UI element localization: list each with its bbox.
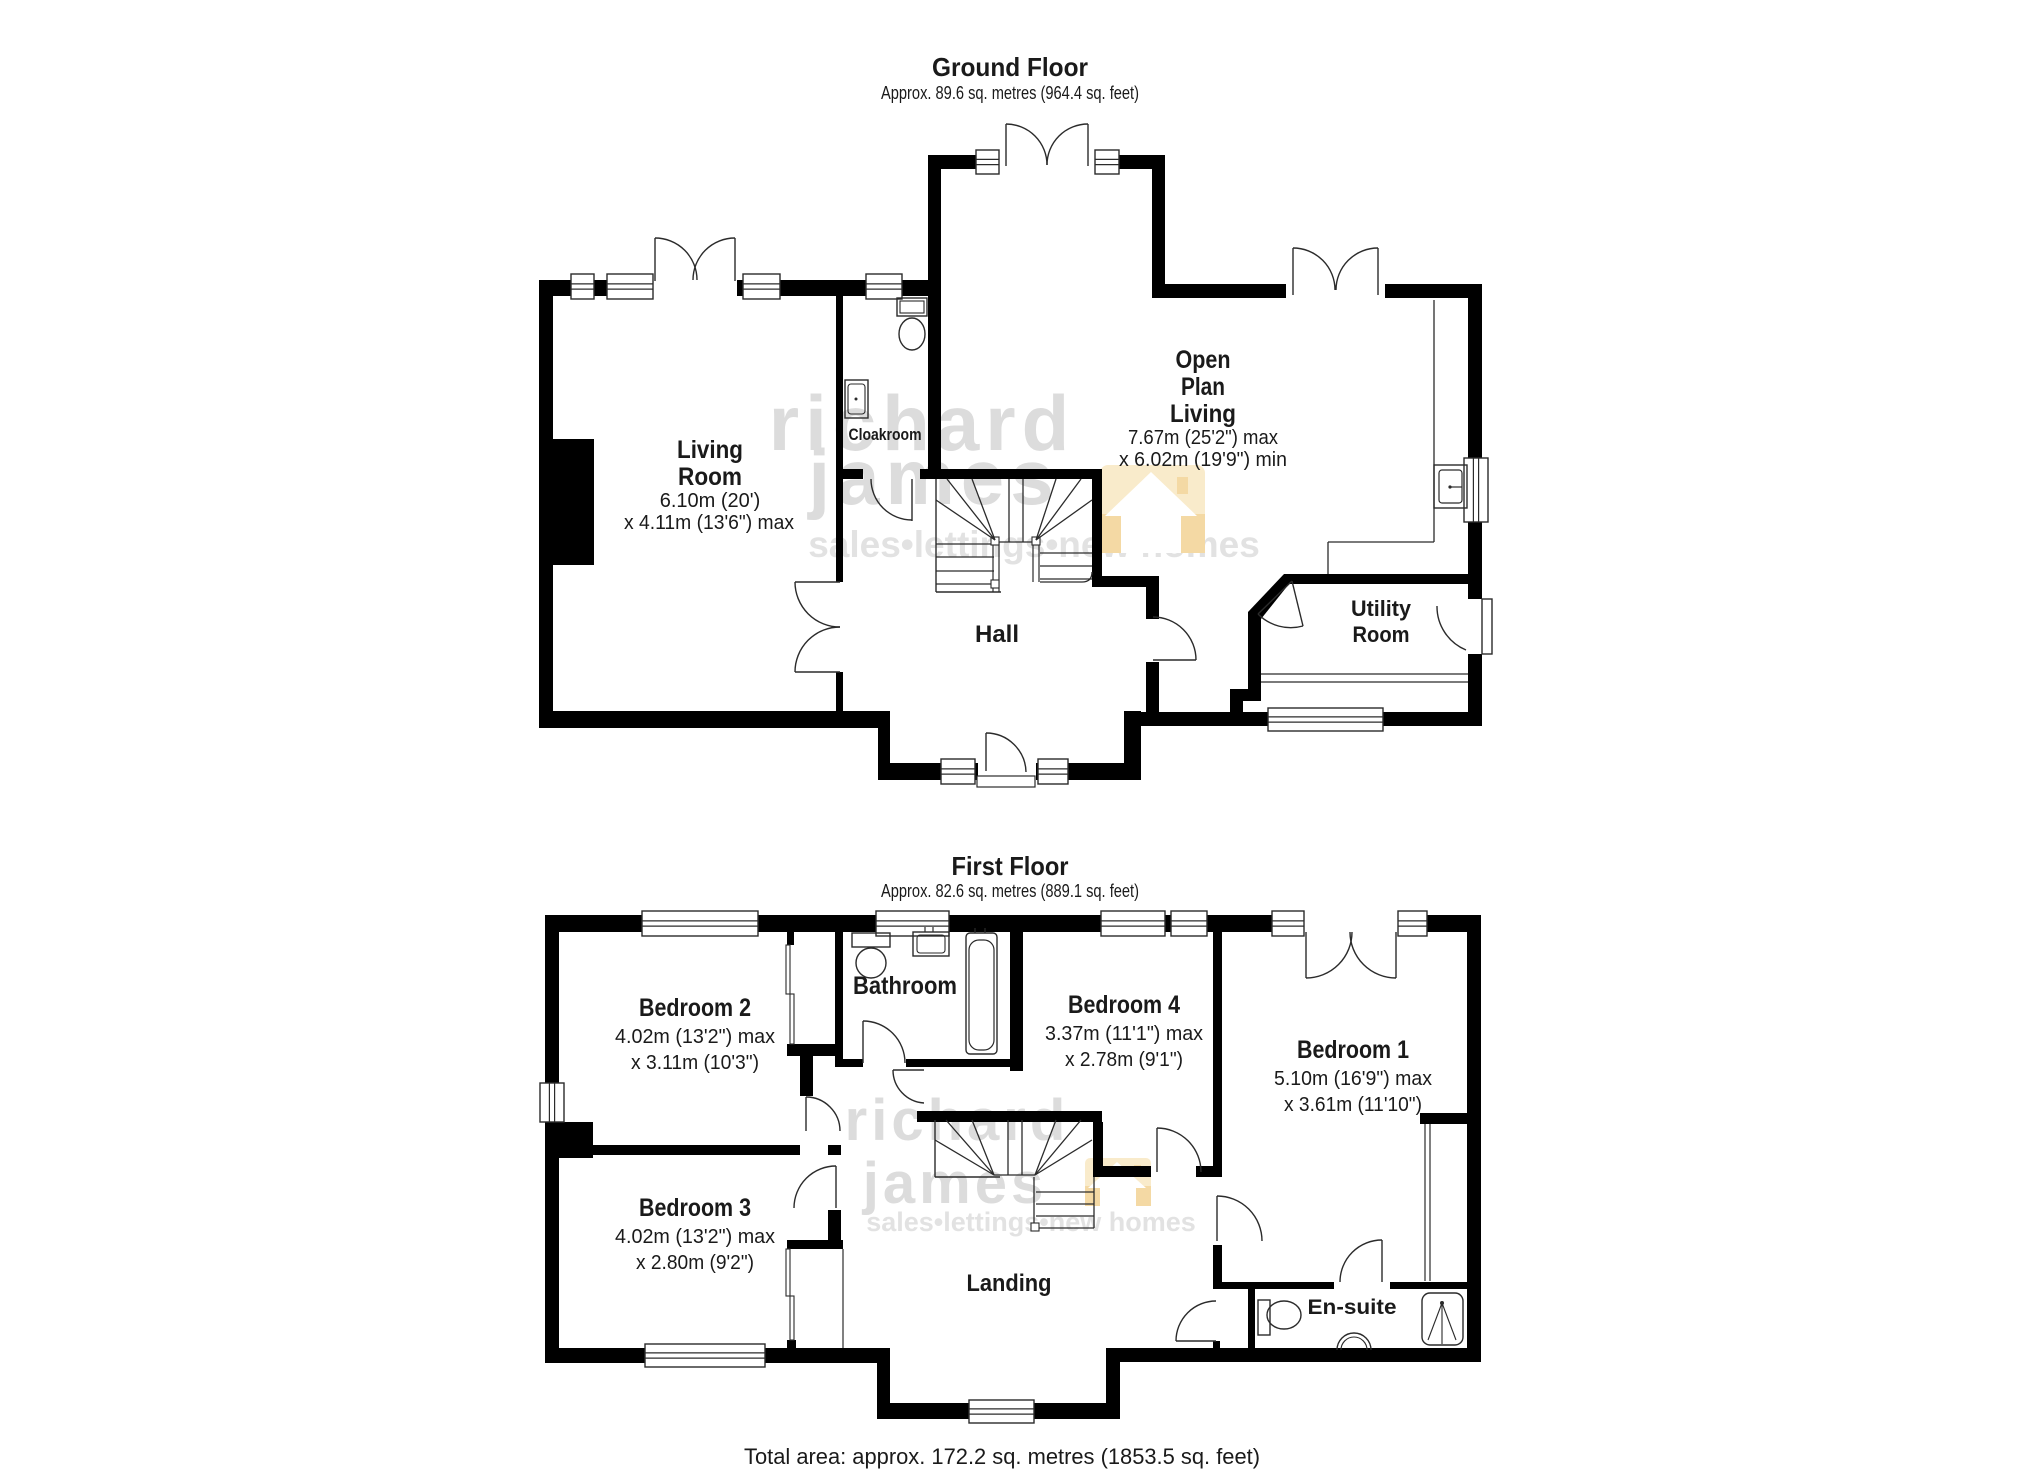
svg-text:Living: Living xyxy=(1170,400,1236,428)
svg-text:5.10m (16'9") max: 5.10m (16'9") max xyxy=(1274,1068,1432,1090)
svg-text:Bathroom: Bathroom xyxy=(853,972,957,1000)
svg-text:x 3.61m (11'10"): x 3.61m (11'10") xyxy=(1284,1094,1422,1116)
svg-text:Approx. 82.6 sq. metres (889.1: Approx. 82.6 sq. metres (889.1 sq. feet) xyxy=(881,881,1139,901)
svg-text:First Floor: First Floor xyxy=(952,851,1069,881)
svg-text:Plan: Plan xyxy=(1181,373,1225,401)
svg-text:x 3.11m (10'3"): x 3.11m (10'3") xyxy=(631,1052,759,1074)
svg-text:4.02m (13'2") max: 4.02m (13'2") max xyxy=(615,1226,775,1248)
svg-text:x 6.02m (19'9") min: x 6.02m (19'9") min xyxy=(1119,449,1287,471)
svg-text:Hall: Hall xyxy=(975,621,1019,648)
svg-text:Approx. 89.6 sq. metres (964.4: Approx. 89.6 sq. metres (964.4 sq. feet) xyxy=(881,83,1139,103)
svg-text:Bedroom 3: Bedroom 3 xyxy=(639,1194,751,1222)
svg-text:Bedroom 2: Bedroom 2 xyxy=(639,994,751,1022)
svg-text:sales•lettings•new homes: sales•lettings•new homes xyxy=(866,1207,1196,1237)
svg-text:Room: Room xyxy=(1353,622,1410,647)
svg-text:Utility: Utility xyxy=(1351,596,1412,621)
svg-text:6.10m (20'): 6.10m (20') xyxy=(660,490,761,512)
svg-text:x 2.78m (9'1"): x 2.78m (9'1") xyxy=(1065,1049,1183,1071)
svg-text:4.02m (13'2") max: 4.02m (13'2") max xyxy=(615,1026,775,1048)
svg-text:7.67m (25'2") max: 7.67m (25'2") max xyxy=(1128,427,1278,449)
svg-text:Bedroom 1: Bedroom 1 xyxy=(1297,1036,1409,1064)
svg-text:Open: Open xyxy=(1176,346,1231,374)
svg-text:Ground Floor: Ground Floor xyxy=(932,52,1088,82)
svg-text:3.37m (11'1") max: 3.37m (11'1") max xyxy=(1045,1023,1203,1045)
svg-text:Living: Living xyxy=(677,436,743,464)
svg-text:x 2.80m (9'2"): x 2.80m (9'2") xyxy=(636,1252,754,1274)
svg-text:x 4.11m (13'6") max: x 4.11m (13'6") max xyxy=(624,512,794,534)
svg-text:Bedroom 4: Bedroom 4 xyxy=(1068,991,1180,1019)
svg-text:Total area: approx. 172.2 sq.: Total area: approx. 172.2 sq. metres (18… xyxy=(744,1444,1260,1469)
svg-text:Room: Room xyxy=(678,463,742,491)
svg-text:Landing: Landing xyxy=(967,1270,1052,1297)
svg-text:Cloakroom: Cloakroom xyxy=(849,425,922,444)
svg-text:En-suite: En-suite xyxy=(1308,1296,1397,1319)
